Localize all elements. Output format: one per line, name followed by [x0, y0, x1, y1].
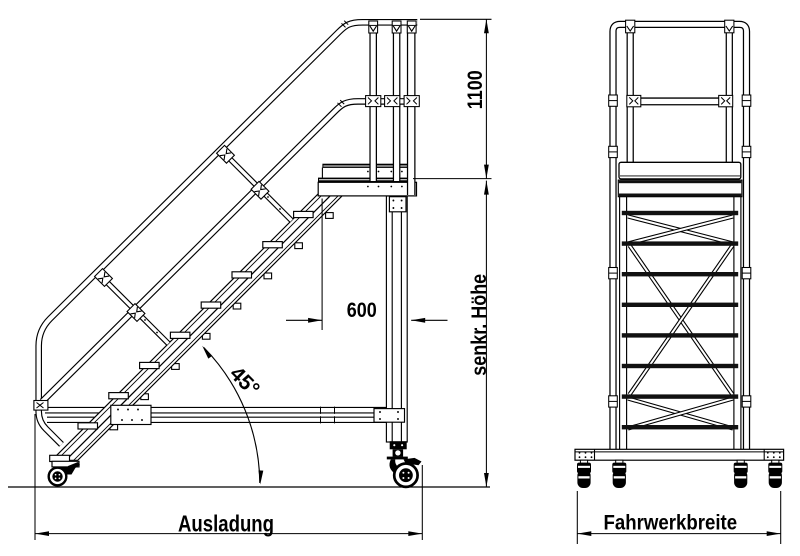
- svg-text:1100: 1100: [464, 70, 487, 109]
- svg-text:Ausladung: Ausladung: [178, 510, 274, 536]
- svg-text:senkr. Höhe: senkr. Höhe: [468, 274, 491, 376]
- svg-text:Fahrwerkbreite: Fahrwerkbreite: [604, 511, 738, 534]
- svg-text:600: 600: [347, 299, 377, 322]
